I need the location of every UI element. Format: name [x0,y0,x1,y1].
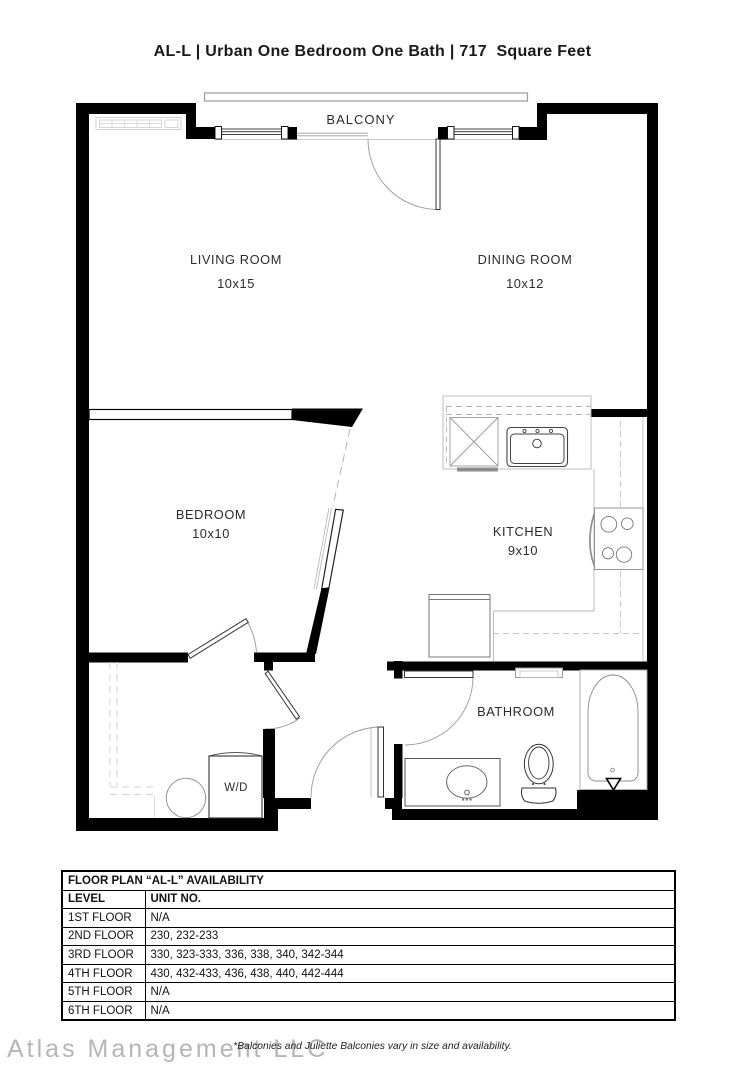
svg-text:KITCHEN: KITCHEN [493,524,553,539]
svg-text:LIVING ROOM: LIVING ROOM [190,252,282,267]
svg-text:BEDROOM: BEDROOM [176,507,246,522]
svg-text:9x10: 9x10 [508,543,538,558]
svg-text:10x15: 10x15 [217,276,255,291]
svg-text:W/D: W/D [224,782,248,794]
svg-text:BATHROOM: BATHROOM [477,704,555,719]
svg-text:BALCONY: BALCONY [326,112,395,127]
svg-text:DINING ROOM: DINING ROOM [478,252,573,267]
svg-text:10x10: 10x10 [192,526,230,541]
svg-text:10x12: 10x12 [506,276,544,291]
